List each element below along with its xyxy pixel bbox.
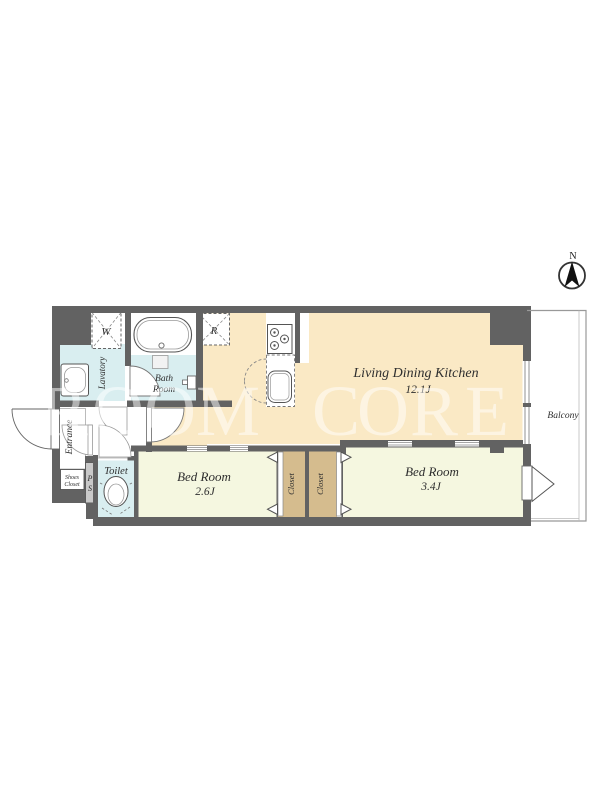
svg-text:O: O (144, 371, 196, 451)
svg-text:N: N (569, 251, 576, 262)
svg-text:3.4J: 3.4J (420, 481, 441, 493)
svg-text:Toilet: Toilet (104, 466, 129, 477)
svg-text:Closet: Closet (315, 473, 325, 495)
svg-text:Closet: Closet (64, 482, 80, 488)
svg-text:Balcony: Balcony (547, 411, 579, 421)
svg-text:S: S (88, 484, 92, 493)
svg-text:Bed Room: Bed Room (405, 464, 459, 479)
svg-text:E: E (465, 371, 509, 451)
svg-text:P: P (87, 474, 93, 483)
svg-text:Closet: Closet (286, 473, 296, 495)
svg-text:Bed Room: Bed Room (177, 469, 231, 484)
svg-text:Shoes: Shoes (65, 475, 80, 481)
svg-text:R: R (410, 371, 458, 451)
svg-text:C: C (312, 371, 360, 451)
svg-text:M: M (196, 371, 260, 451)
svg-text:W: W (101, 326, 111, 338)
svg-text:O: O (92, 371, 144, 451)
svg-text:R: R (40, 371, 88, 451)
svg-text:R: R (210, 326, 218, 337)
svg-text:O: O (357, 371, 409, 451)
svg-text:2.6J: 2.6J (195, 486, 215, 498)
